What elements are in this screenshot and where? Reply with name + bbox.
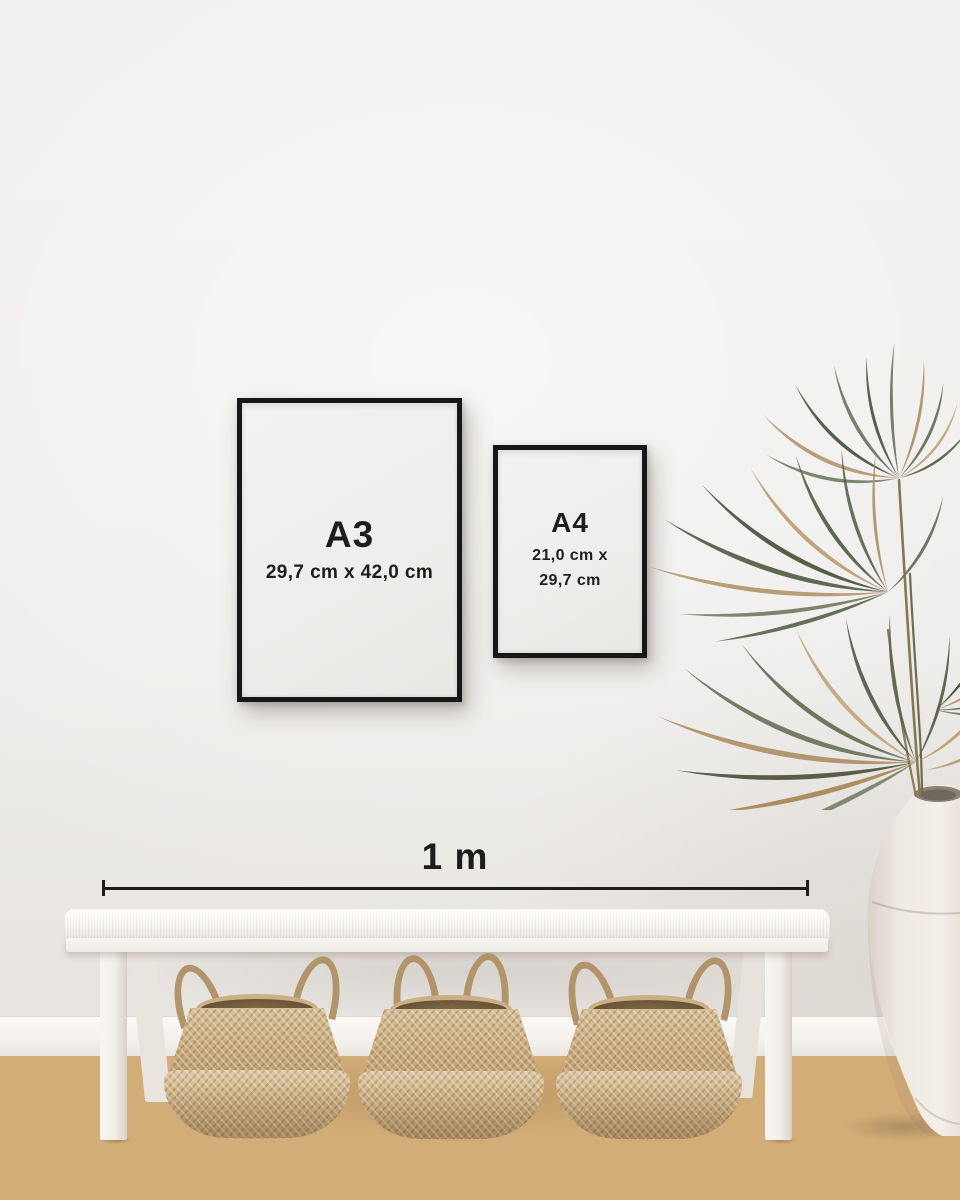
basket-upper-body: [363, 1009, 539, 1075]
scale-bar-line: [102, 887, 809, 890]
poster-dimensions-a4: 21,0 cm x 29,7 cm: [532, 544, 608, 594]
vase-body: [868, 784, 960, 1136]
seagrass-basket-1: [164, 956, 350, 1140]
poster-dimensions-a4-line1: 21,0 cm x: [532, 544, 608, 569]
seagrass-basket-2: [358, 957, 544, 1141]
ceramic-vase: [858, 784, 960, 1136]
scale-bar-tick-right: [806, 880, 809, 896]
bench-seat-rail: [66, 938, 828, 952]
seagrass-basket-3: [556, 957, 742, 1141]
bench-woven-seat: [64, 909, 830, 941]
poster-dimensions-a4-line2: 29,7 cm: [532, 569, 608, 594]
palm-plant: [616, 330, 960, 810]
scale-bar-label: 1 m: [330, 836, 580, 878]
poster-size-label-a3: A3: [325, 516, 374, 553]
basket-upper-body: [169, 1008, 345, 1074]
basket-upper-body: [561, 1009, 737, 1075]
poster-paper-a3: A3 29,7 cm x 42,0 cm: [242, 403, 457, 697]
basket-belly: [358, 1071, 544, 1139]
basket-belly: [164, 1070, 350, 1138]
poster-size-label-a4: A4: [551, 509, 589, 537]
bench-leg-front-left: [100, 948, 127, 1140]
plant-leaves: [649, 343, 960, 810]
bench-leg-front-right: [765, 948, 792, 1140]
scale-bar-tick-left: [102, 880, 105, 896]
poster-size-guide-scene: A3 29,7 cm x 42,0 cm A4 21,0 cm x 29,7 c…: [0, 0, 960, 1200]
poster-frame-a3: A3 29,7 cm x 42,0 cm: [237, 398, 462, 702]
basket-belly: [556, 1071, 742, 1139]
poster-dimensions-a3: 29,7 cm x 42,0 cm: [266, 562, 433, 584]
